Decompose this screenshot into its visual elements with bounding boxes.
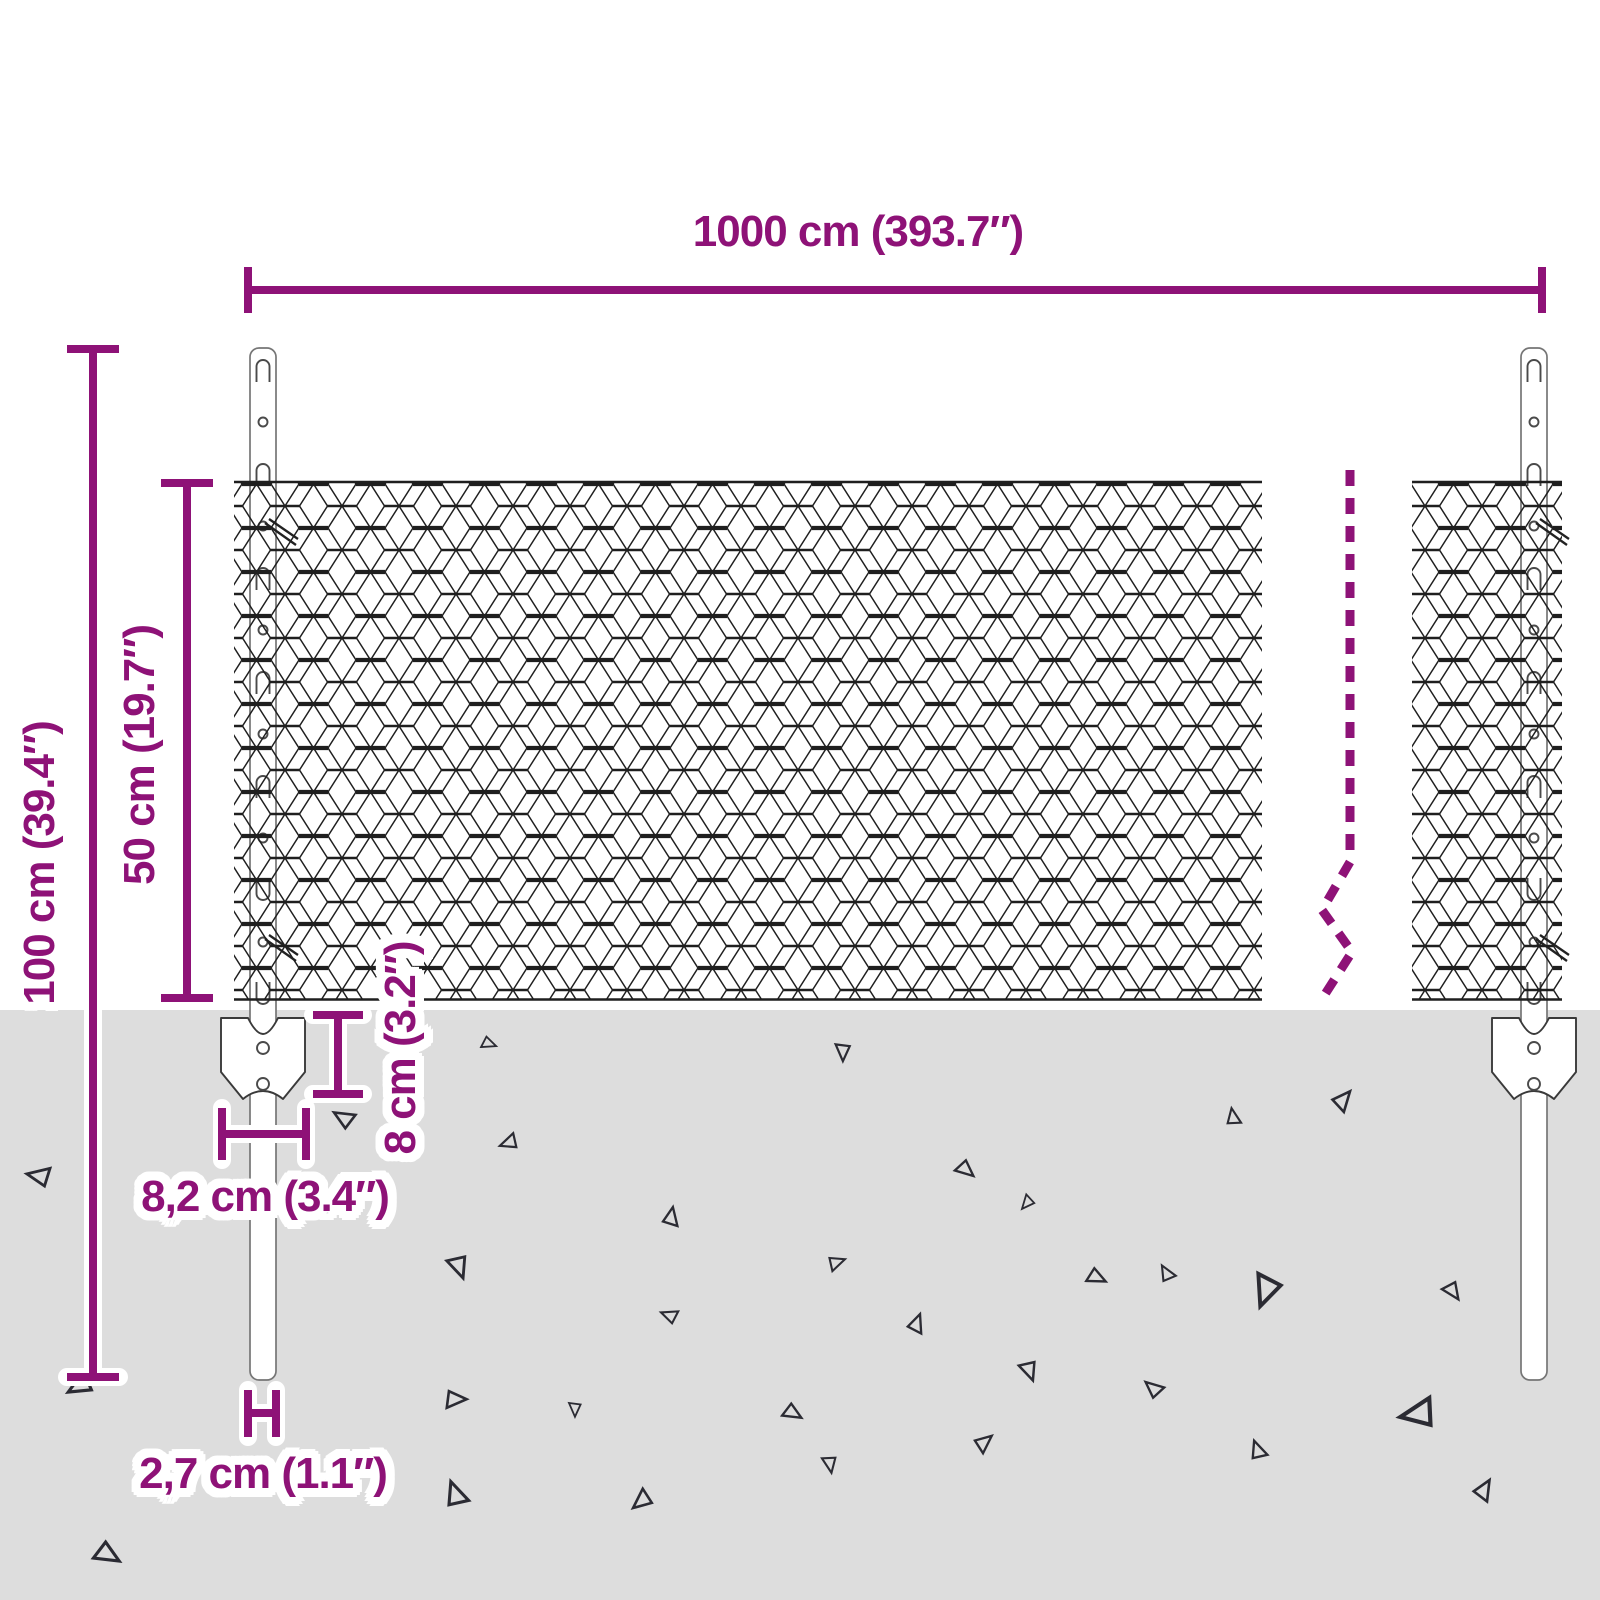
break-line	[1320, 470, 1352, 1002]
dim-label-mesh-height: 50 cm (19.7″)	[118, 625, 162, 885]
mesh-panel-right	[1412, 482, 1562, 1000]
dim-line-length	[248, 267, 1542, 313]
dim-label-total-height: 100 cm (39.4″)	[18, 721, 62, 1004]
dim-label-anchor-depth: 8 cm (3.2″)	[379, 941, 423, 1154]
ground	[0, 1010, 1600, 1600]
mesh-panel-main	[234, 482, 1262, 1000]
dim-label-length: 1000 cm (393.7″)	[693, 210, 1023, 254]
dim-label-post-width: 2,7 cm (1.1″)	[139, 1452, 387, 1496]
fence-dimension-diagram: 1000 cm (393.7″) 100 cm (39.4″) 50 cm (1…	[0, 0, 1600, 1600]
dim-label-anchor-width: 8,2 cm (3.4″)	[141, 1175, 389, 1219]
dim-line-mesh-height	[161, 483, 213, 998]
